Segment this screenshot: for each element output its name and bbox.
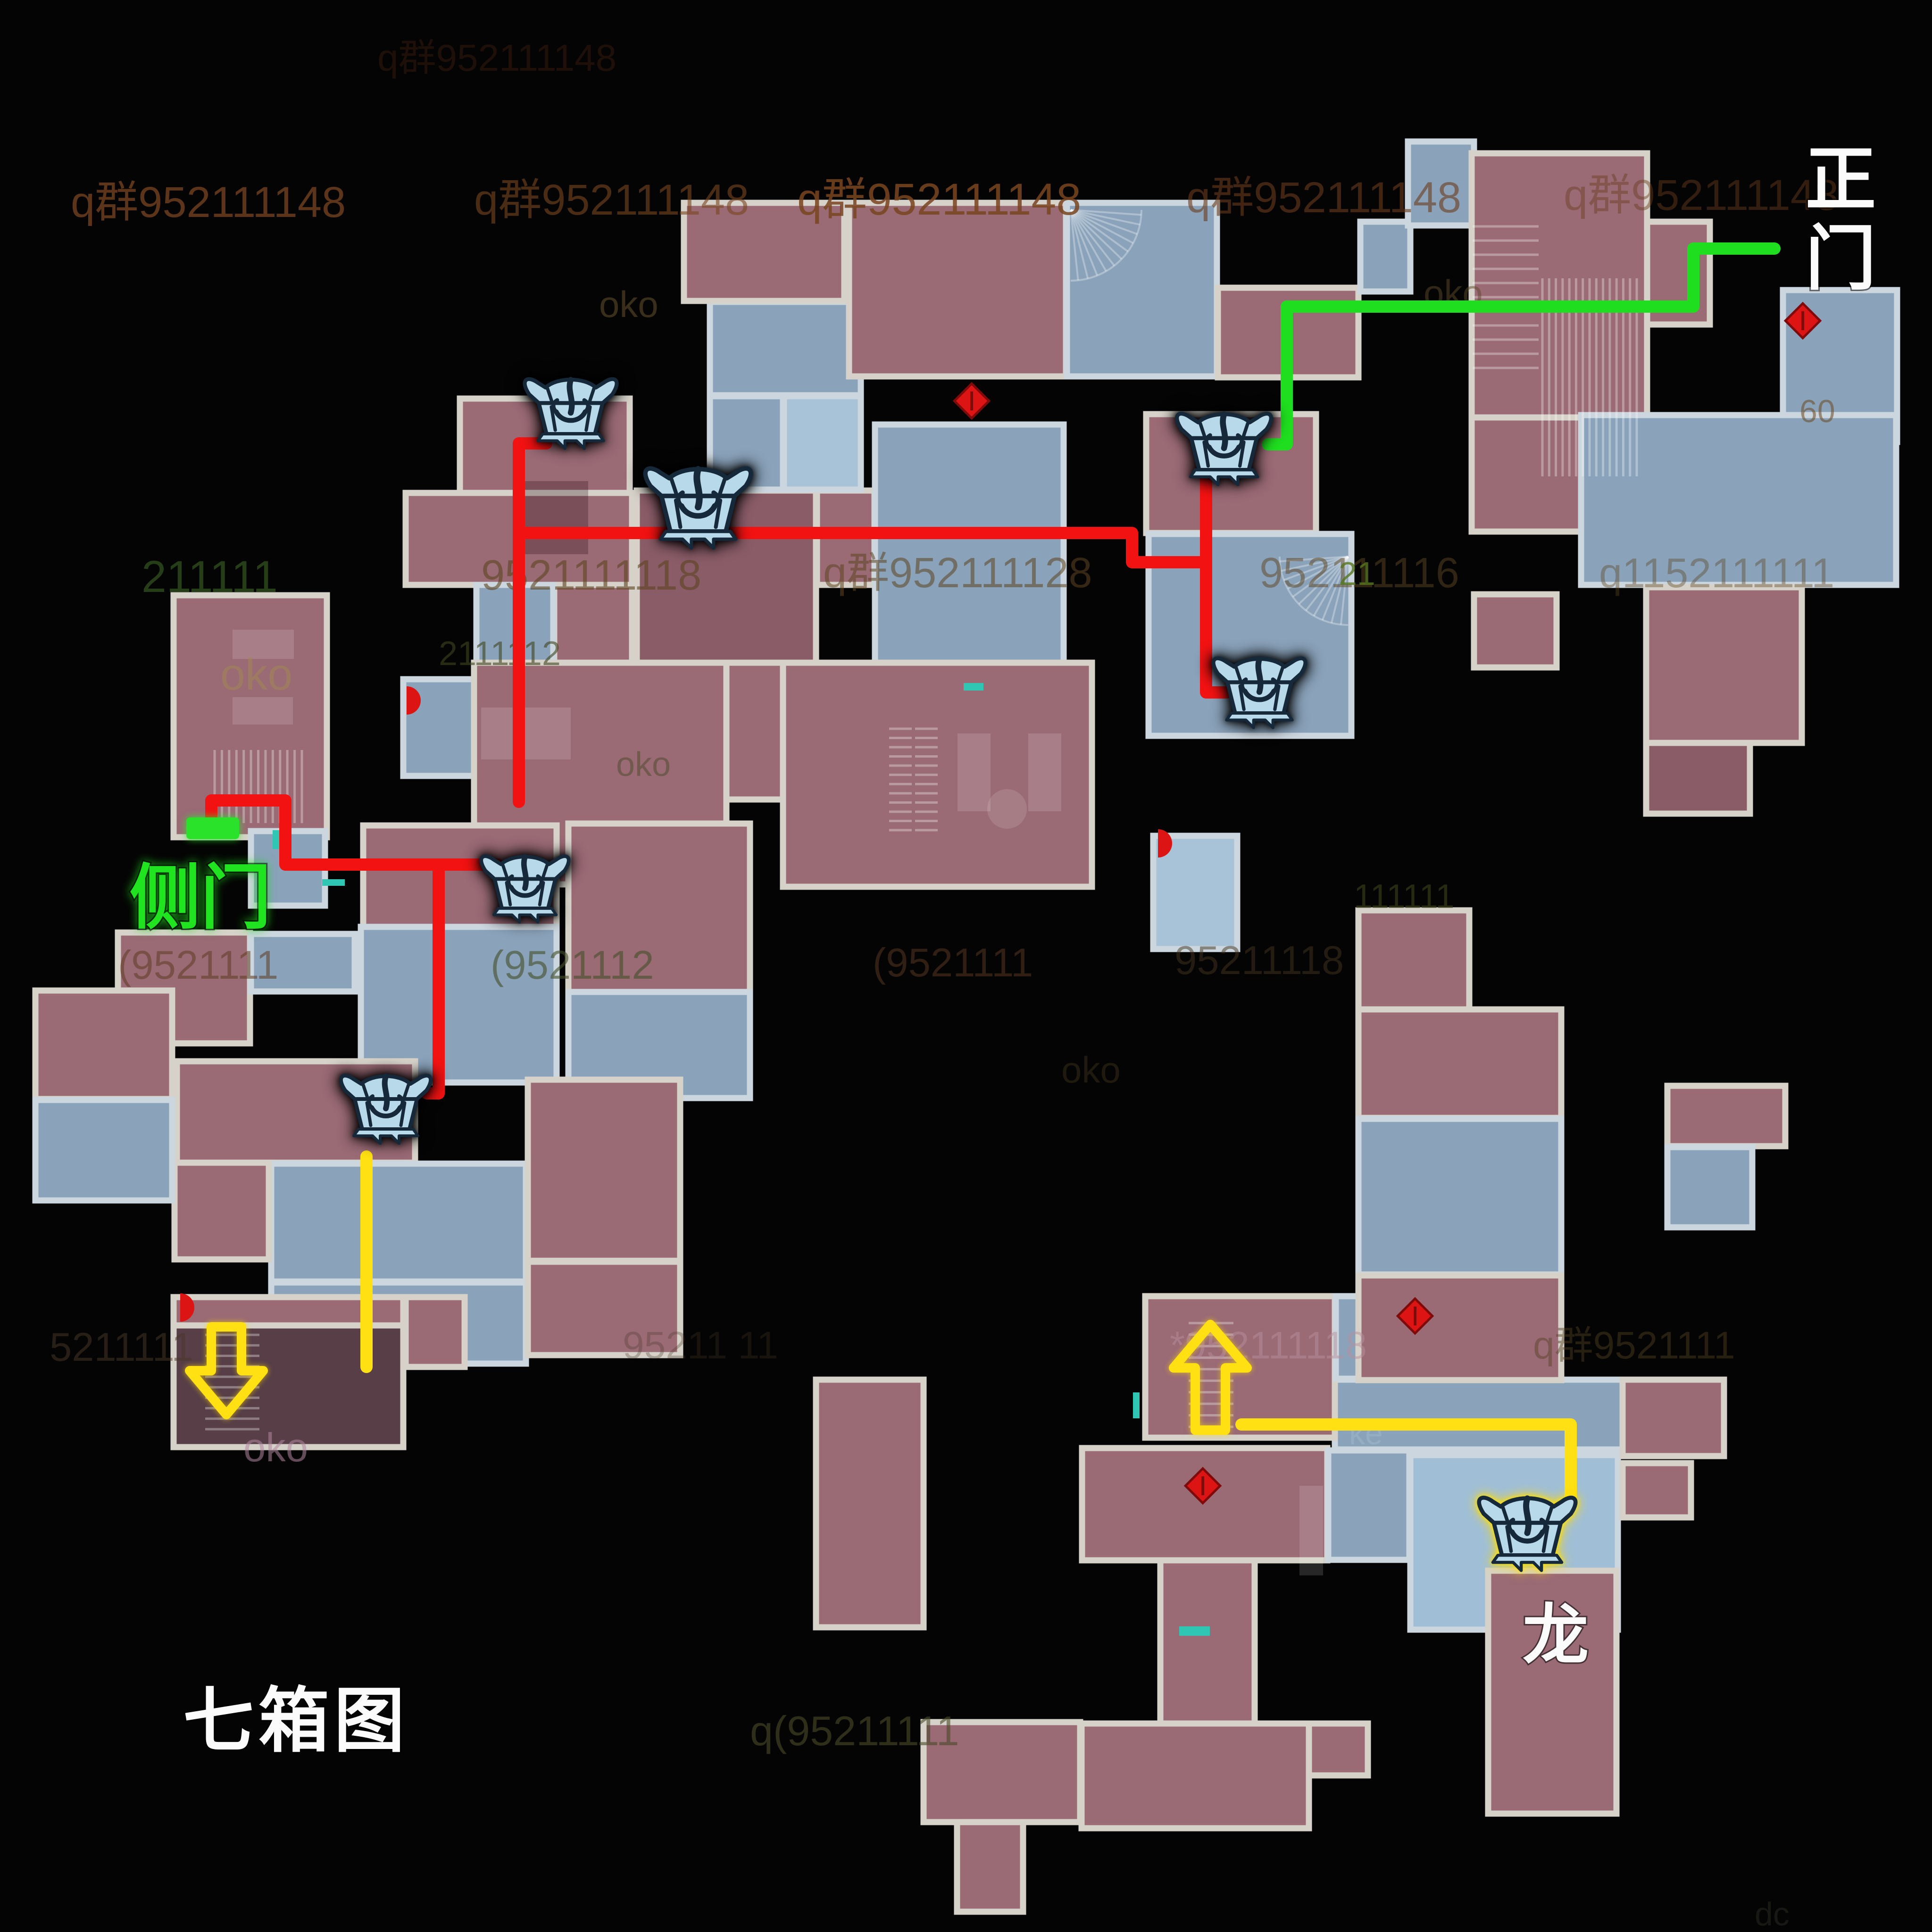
room <box>1667 1086 1785 1146</box>
room <box>1082 1724 1309 1828</box>
teal-door-marker <box>964 683 983 691</box>
watermark-text: 95211 11 <box>623 1324 778 1367</box>
teal-door-marker <box>1133 1392 1140 1418</box>
inset-texture <box>1028 733 1061 811</box>
room <box>35 991 172 1099</box>
treasure-map: q群952111148q群952111148q群952111148q群95211… <box>0 0 1932 1932</box>
room <box>35 1100 172 1200</box>
watermark-text: q群952111148 <box>474 176 749 224</box>
watermark-text: 2111112 <box>439 635 561 673</box>
room <box>1667 1147 1752 1227</box>
room <box>710 302 861 395</box>
inset-texture <box>1299 1486 1323 1575</box>
circle-texture <box>987 789 1027 829</box>
watermark-text: 60 <box>1799 393 1835 429</box>
room <box>784 396 861 490</box>
watermark-text: 111111 <box>1354 878 1455 916</box>
watermark-text: oko <box>616 746 671 783</box>
room <box>1160 1560 1255 1724</box>
room <box>1646 587 1802 743</box>
inset-texture <box>233 697 293 724</box>
teal-door-marker <box>1179 1626 1210 1636</box>
watermark-text: q群952111148 <box>71 178 346 226</box>
watermark-text: oko <box>599 283 658 325</box>
label-side-door: 侧门 <box>130 858 271 937</box>
watermark-text: 5211111 <box>50 1325 194 1370</box>
watermark-text: 21 <box>1339 555 1375 592</box>
watermark-text: q群952111148 <box>377 37 616 79</box>
room <box>175 1163 269 1259</box>
label-map-title: 七箱图 <box>183 1681 409 1760</box>
watermark-text: q群9521111 <box>1533 1324 1735 1367</box>
watermark-text: q群952111148 <box>1186 174 1461 222</box>
watermark-text: oko <box>220 650 292 700</box>
watermark-text: oko <box>243 1425 308 1470</box>
room <box>1623 1463 1691 1517</box>
room <box>406 1297 465 1367</box>
side-door-marker <box>186 817 239 839</box>
room <box>1358 1119 1561 1274</box>
room <box>271 1164 526 1282</box>
watermark-text: 95211118 <box>1174 938 1344 983</box>
room <box>957 1822 1023 1912</box>
teal-door-marker <box>322 879 345 886</box>
watermark-text: q(95211111 <box>750 1707 959 1754</box>
watermark-text: (9521112 <box>491 943 654 988</box>
label-dragon: 龙 <box>1523 1598 1589 1672</box>
room <box>1472 417 1581 532</box>
inset-texture <box>958 733 991 811</box>
watermark-text: q群952111128 <box>823 550 1092 597</box>
map-canvas: q群952111148q群952111148q群952111148q群95211… <box>0 0 1932 1932</box>
room <box>1474 594 1557 667</box>
inset-texture <box>515 481 588 554</box>
label-main-gate: 正门 <box>1795 142 1874 300</box>
room <box>1082 1448 1327 1560</box>
room <box>1309 1724 1368 1775</box>
room <box>1623 1380 1724 1456</box>
teal-door-marker <box>273 830 279 849</box>
room <box>528 1080 680 1261</box>
watermark-text: dc <box>1755 1896 1790 1932</box>
room <box>1646 743 1750 814</box>
room <box>875 425 1064 665</box>
room <box>1360 222 1410 291</box>
room <box>1328 1450 1409 1560</box>
inset-texture <box>481 708 571 759</box>
watermark-text: q群952111148 <box>797 175 1081 225</box>
room <box>1358 1275 1561 1380</box>
room <box>849 203 1066 376</box>
watermark-text: (9521111 <box>873 941 1033 985</box>
room <box>816 1380 924 1627</box>
watermark-text: 211111 <box>142 552 278 602</box>
room <box>1358 1009 1561 1118</box>
watermark-text: q1152111111 <box>1599 550 1834 596</box>
watermark-text: oko <box>1061 1049 1121 1091</box>
